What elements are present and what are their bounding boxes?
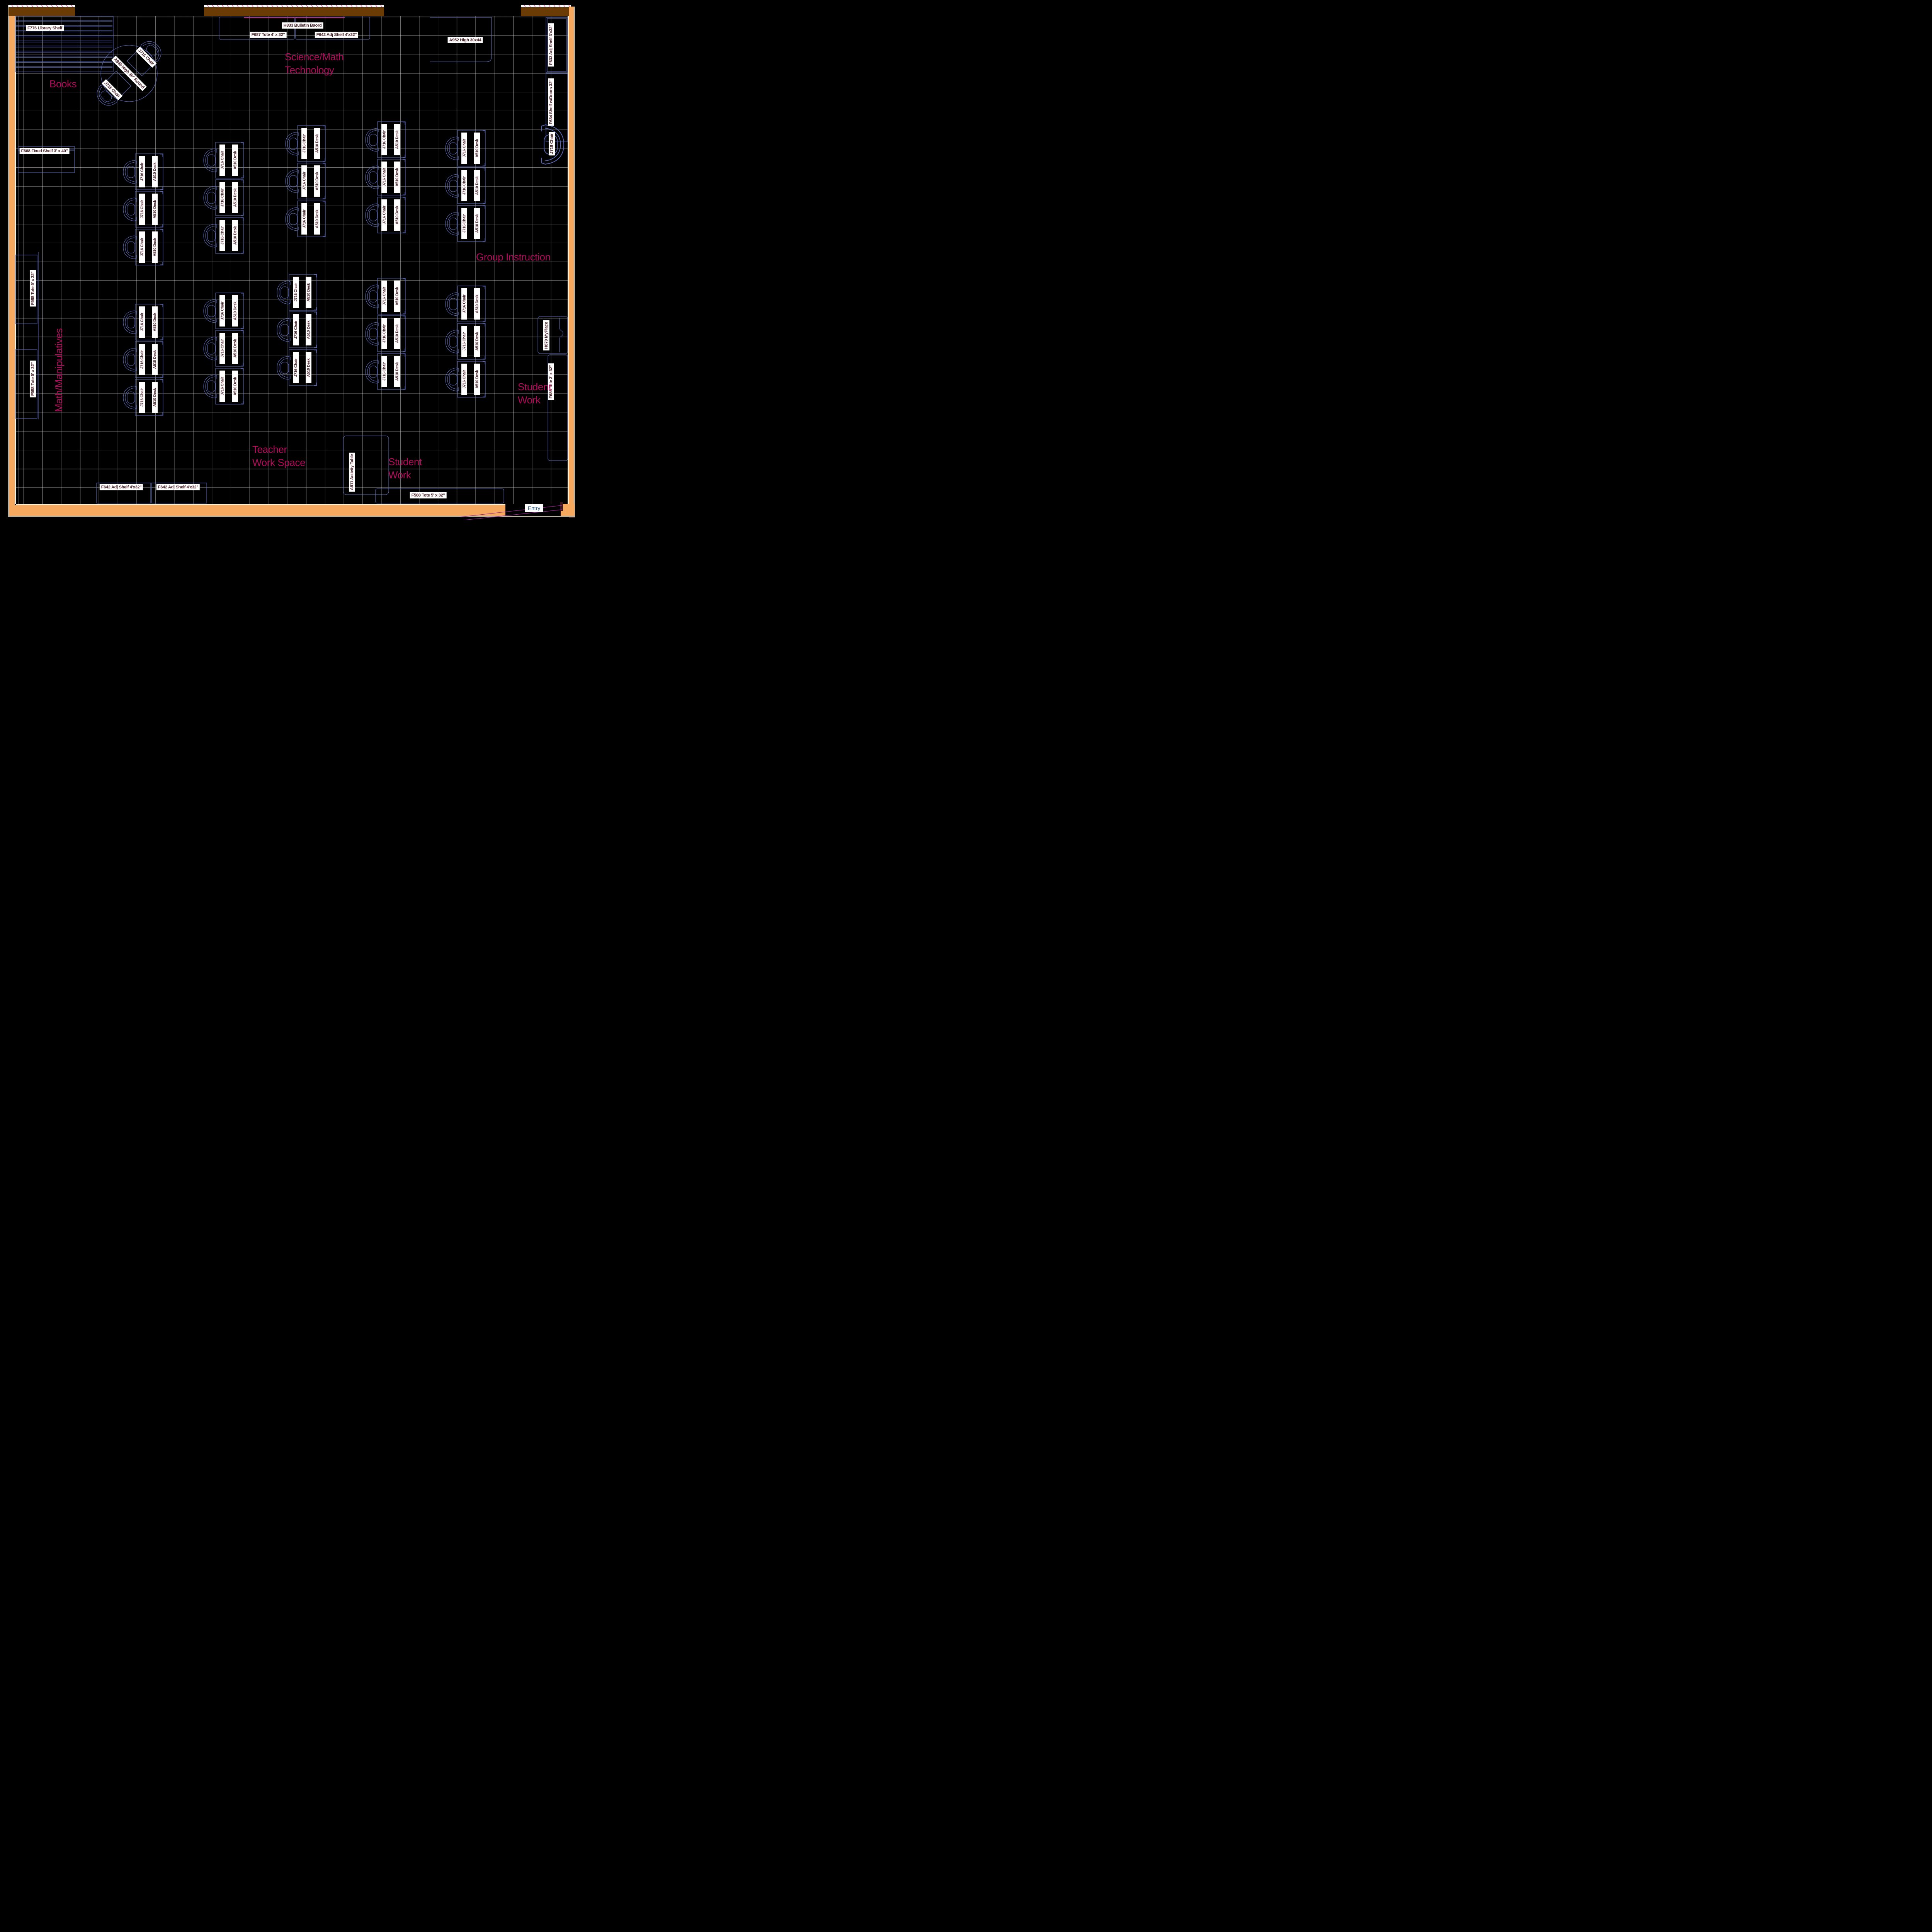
desk-corner-detail bbox=[314, 312, 316, 347]
desk-label: A510 Desk bbox=[307, 320, 311, 339]
desk-unit: J716 ChairA510 Desk bbox=[446, 286, 485, 322]
chair-label: J716 Chair bbox=[221, 301, 225, 320]
desk-label: A510 Desk bbox=[475, 332, 480, 351]
desk-label: A510 Desk bbox=[395, 130, 400, 149]
label-h870: H870 MyPlace bbox=[543, 320, 549, 350]
desk-corner-detail bbox=[314, 275, 316, 310]
chair-glyph bbox=[204, 149, 217, 172]
desk-label: A510 Desk bbox=[233, 301, 238, 320]
chair-label: J716 Chair bbox=[383, 362, 387, 381]
myplace-outline bbox=[538, 316, 568, 354]
chair-label: J716 Chair bbox=[463, 370, 467, 388]
chair-label: J716 Chair bbox=[221, 188, 225, 207]
desk-corner-detail bbox=[403, 122, 405, 157]
desk-label: A510 Desk bbox=[233, 339, 238, 358]
desk-unit: J716 ChairA510 Desk bbox=[366, 197, 405, 233]
desk-corner-detail bbox=[483, 324, 485, 359]
desk-label: A510 Desk bbox=[475, 370, 480, 389]
chair-glyph bbox=[204, 224, 217, 247]
desk-label: A510 Desk bbox=[153, 313, 157, 332]
label-a811: A811 Activity Table bbox=[349, 452, 355, 492]
desk-label: A510 Desk bbox=[153, 388, 157, 407]
chair-glyph bbox=[204, 186, 217, 209]
desk-unit: J716 ChairA510 Desk bbox=[286, 201, 325, 237]
chair-label: J716 Chair bbox=[463, 214, 467, 233]
zone-group-instruction: Group Instruction bbox=[476, 250, 551, 264]
desk-corner-detail bbox=[323, 163, 325, 199]
chair-glyph bbox=[446, 212, 459, 235]
chair-glyph bbox=[286, 207, 299, 231]
chair-label: J716 Chair bbox=[294, 358, 298, 377]
desk-unit: J716 ChairA510 Desk bbox=[277, 350, 317, 386]
desk-corner-detail bbox=[403, 197, 405, 233]
desk-unit: J716 ChairA510 Desk bbox=[446, 206, 485, 241]
desk-unit: J716 ChairA510 Desk bbox=[123, 342, 163, 378]
desk-corner-detail bbox=[160, 304, 163, 340]
desk-unit: J716 ChairA510 Desk bbox=[446, 130, 485, 166]
zone-student-work-right: Student Work bbox=[518, 380, 551, 407]
chair-glyph bbox=[366, 285, 379, 308]
chair-glyph bbox=[446, 174, 459, 197]
label-f588-bottom: F588 Tote 5' x 32" bbox=[410, 492, 447, 498]
label-f642-top: F642 Adj Shelf 4'x32" bbox=[315, 32, 358, 38]
desk-unit: J716 ChairA510 Desk bbox=[446, 168, 485, 204]
zone-math-manipulatives: Math/Manipulatives bbox=[52, 328, 65, 412]
chair-label: J716 Chair bbox=[294, 320, 298, 339]
chair-label: J716 Chair bbox=[221, 377, 225, 395]
desk-corner-detail bbox=[160, 154, 163, 189]
desk-label: A510 Desk bbox=[395, 168, 400, 187]
entry-label: Entry bbox=[525, 504, 543, 512]
desk-corner-detail bbox=[314, 350, 316, 385]
chair-glyph bbox=[446, 330, 459, 353]
desk-label: A510 Desk bbox=[395, 324, 400, 343]
chair-label: J716 Chair bbox=[383, 168, 387, 186]
chair-glyph bbox=[277, 281, 290, 304]
desk-label: A510 Desk bbox=[233, 377, 238, 396]
desk-unit: J716 ChairA510 Desk bbox=[123, 191, 163, 227]
chair-glyph bbox=[123, 160, 136, 184]
chair-label: J716 Chair bbox=[383, 130, 387, 149]
desk-corner-detail bbox=[241, 180, 243, 215]
chair-glyph bbox=[123, 311, 136, 334]
desk-label: A510 Desk bbox=[395, 287, 400, 306]
desk-unit: J716 ChairA510 Desk bbox=[286, 126, 325, 162]
desk-label: A510 Desk bbox=[233, 188, 238, 207]
desk-label: A510 Desk bbox=[153, 350, 157, 369]
chair-glyph bbox=[446, 137, 459, 160]
chair-label: J716 Chair bbox=[463, 294, 467, 313]
chair-label: J716 Chair bbox=[140, 350, 145, 369]
desk-unit: J716 ChairA510 Desk bbox=[204, 330, 243, 366]
chair-glyph bbox=[446, 368, 459, 391]
chair-label: J716 Chair bbox=[303, 134, 307, 153]
chair-label: J716 Chair bbox=[140, 238, 145, 256]
desk-label: A510 Desk bbox=[307, 283, 311, 302]
desk-unit: J716 ChairA510 Desk bbox=[366, 354, 405, 389]
desk-corner-detail bbox=[403, 160, 405, 195]
myplace-detail bbox=[560, 318, 563, 352]
desk-unit: J716 ChairA510 Desk bbox=[366, 278, 405, 314]
desk-unit: J716 ChairA510 Desk bbox=[123, 229, 163, 265]
chair-label: J716 Chair bbox=[463, 332, 467, 350]
label-f634: F634 Shelf w/Doors 32" bbox=[548, 78, 554, 126]
desk-corner-detail bbox=[241, 143, 243, 178]
chair-glyph bbox=[446, 293, 459, 316]
chair-label: J716 Chair bbox=[383, 206, 387, 224]
desk-corner-detail bbox=[323, 201, 325, 236]
chair-label: J716 Chair bbox=[221, 151, 225, 169]
desk-unit: J716 ChairA510 Desk bbox=[366, 122, 405, 158]
desk-label: A510 Desk bbox=[233, 151, 238, 170]
zone-student-work-bottom: Student Work bbox=[388, 455, 422, 482]
desk-corner-detail bbox=[483, 131, 485, 166]
chair-label: J716 Chair bbox=[383, 287, 387, 305]
desk-unit: J716 ChairA510 Desk bbox=[446, 361, 485, 397]
desk-unit: J716 ChairA510 Desk bbox=[204, 180, 243, 216]
chair-glyph bbox=[366, 360, 379, 383]
desk-corner-detail bbox=[323, 126, 325, 161]
chair-label: J716 Chair bbox=[303, 209, 307, 228]
desk-unit: J716 ChairA510 Desk bbox=[123, 304, 163, 340]
desk-unit: J716 ChairA510 Desk bbox=[286, 163, 325, 199]
zone-teacher-work-space: Teacher Work Space bbox=[252, 443, 305, 469]
chair-label: J716 Chair bbox=[140, 200, 145, 218]
desk-unit: J716 ChairA510 Desk bbox=[277, 274, 317, 310]
desk-corner-detail bbox=[160, 192, 163, 227]
desk-unit: J716 ChairA510 Desk bbox=[204, 368, 243, 404]
desk-label: A510 Desk bbox=[233, 226, 238, 245]
desk-unit: J716 ChairA510 Desk bbox=[366, 159, 405, 195]
chair-glyph bbox=[123, 236, 136, 259]
desk-label: A510 Desk bbox=[475, 139, 480, 158]
desk-unit: J716 ChairA510 Desk bbox=[446, 323, 485, 359]
desk-corner-detail bbox=[160, 380, 163, 415]
desk-label: A510 Desk bbox=[315, 172, 320, 190]
chair-label: J716 Chair bbox=[140, 162, 145, 181]
label-f776: F776 Library Shelf bbox=[26, 25, 64, 31]
label-a952: A952 High 30x44 bbox=[448, 37, 483, 43]
chair-glyph bbox=[286, 170, 299, 193]
desk-label: A510 Desk bbox=[315, 209, 320, 228]
chair-label: J716 Chair bbox=[221, 339, 225, 357]
desk-corner-detail bbox=[483, 168, 485, 203]
chair-glyph bbox=[204, 299, 217, 323]
desk-corner-detail bbox=[483, 362, 485, 397]
desk-corner-detail bbox=[483, 286, 485, 321]
chair-glyph bbox=[123, 198, 136, 221]
desk-unit: J716 ChairA510 Desk bbox=[204, 293, 243, 329]
desk-unit: J716 ChairA510 Desk bbox=[277, 312, 317, 348]
label-f588-left2: F588 Tote 5' x 32" bbox=[30, 361, 36, 398]
desk-corner-detail bbox=[403, 279, 405, 314]
zone-books: Books bbox=[49, 77, 77, 90]
chair-glyph bbox=[286, 132, 299, 155]
desk-label: A510 Desk bbox=[153, 238, 157, 257]
desk-corner-detail bbox=[241, 369, 243, 404]
desk-label: A510 Desk bbox=[475, 176, 480, 195]
chair-label: J716 Chair bbox=[294, 283, 298, 301]
chair-glyph bbox=[366, 322, 379, 345]
desk-label: A510 Desk bbox=[395, 206, 400, 224]
chair-glyph bbox=[366, 204, 379, 227]
desk-label: A510 Desk bbox=[475, 214, 480, 233]
chair-label: J716 Chair bbox=[140, 313, 145, 331]
label-f668: F668 Fixed Shelf 3' x 40" bbox=[20, 148, 70, 154]
desk-unit: J716 ChairA510 Desk bbox=[204, 218, 243, 253]
library-shelf-outline bbox=[15, 16, 113, 72]
desk-unit: J716 ChairA510 Desk bbox=[123, 379, 163, 415]
chair-label: J716 Chair bbox=[463, 139, 467, 157]
label-f687: F687 Tote 4' x 32" bbox=[250, 32, 287, 38]
desk-corner-detail bbox=[160, 230, 163, 265]
chair-glyph bbox=[204, 375, 217, 398]
desk-unit: J716 ChairA510 Desk bbox=[123, 154, 163, 190]
chair-glyph bbox=[204, 337, 217, 360]
chair-glyph bbox=[123, 348, 136, 371]
desk-label: A510 Desk bbox=[395, 362, 400, 381]
desk-corner-detail bbox=[403, 354, 405, 389]
desk-label: A510 Desk bbox=[475, 294, 480, 313]
desk-unit: J716 ChairA510 Desk bbox=[366, 316, 405, 352]
desk-corner-detail bbox=[241, 293, 243, 328]
chair-label: J716 Chair bbox=[463, 176, 467, 195]
label-h833: H833 Bulletin Baord bbox=[282, 22, 323, 29]
desk-label: A510 Desk bbox=[153, 200, 157, 219]
desk-label: A510 Desk bbox=[153, 162, 157, 181]
chair-glyph bbox=[123, 386, 136, 409]
desk-corner-detail bbox=[241, 331, 243, 366]
desk-corner-detail bbox=[483, 206, 485, 241]
desk-corner-detail bbox=[160, 342, 163, 377]
label-f642-bottom1: F642 Adj Shelf 4'x32" bbox=[100, 484, 143, 490]
zone-science: Science/Math Technology bbox=[285, 50, 344, 77]
chair-label: J716 Chair bbox=[383, 324, 387, 343]
label-f642-bottom2: F642 Adj Shelf 4'x32" bbox=[156, 484, 200, 490]
desk-label: A510 Desk bbox=[307, 358, 311, 377]
chair-glyph bbox=[366, 166, 379, 189]
chair-label: J716 Chair bbox=[303, 172, 307, 190]
chair-glyph bbox=[277, 356, 290, 379]
chair-glyph bbox=[366, 128, 379, 151]
label-f633: F633 Adj Shelf 3'x32" bbox=[548, 23, 554, 66]
floor-plan: J716 ChairA510 DeskJ716 ChairA510 DeskJ7… bbox=[0, 0, 580, 520]
desk-unit: J716 ChairA510 Desk bbox=[204, 142, 243, 178]
chair-label: J716 Chair bbox=[221, 226, 225, 245]
label-f588-left1: F588 Tote 5' x 32" bbox=[30, 270, 36, 307]
desk-corner-detail bbox=[241, 218, 243, 253]
chair-label: J716 Chair bbox=[140, 388, 145, 406]
chair-glyph bbox=[277, 318, 290, 342]
label-j718: J718 Chair bbox=[549, 132, 555, 156]
desk-corner-detail bbox=[403, 316, 405, 351]
desk-label: A510 Desk bbox=[315, 134, 320, 153]
door-swing bbox=[461, 505, 562, 520]
